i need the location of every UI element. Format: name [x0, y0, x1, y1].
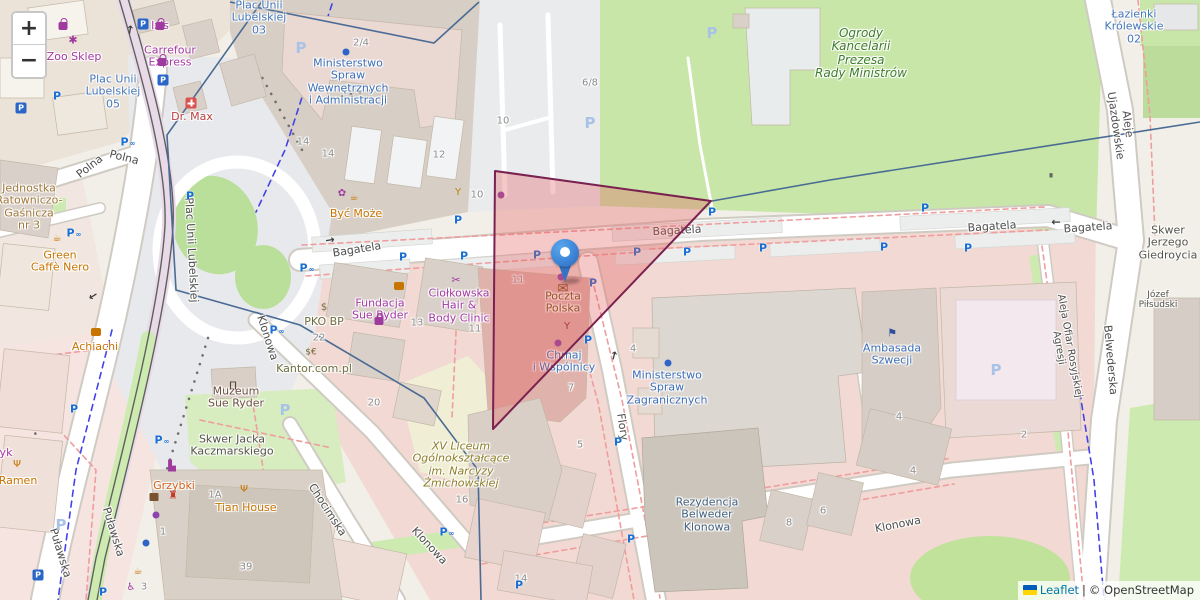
- ukraine-flag-icon: [1023, 585, 1037, 595]
- attribution-bar: Leaflet|© OpenStreetMap: [1018, 581, 1200, 600]
- zoom-in-button[interactable]: +: [13, 13, 45, 45]
- map-canvas[interactable]: PolnaPolnaPlac Unii LubelskiejBagatelaBa…: [0, 0, 1200, 600]
- map-tiles: [0, 0, 1200, 600]
- leaflet-link[interactable]: Leaflet: [1040, 583, 1079, 597]
- osm-copyright[interactable]: © OpenStreetMap: [1089, 583, 1194, 597]
- zoom-control: + −: [11, 11, 47, 79]
- attribution-separator: |: [1082, 583, 1086, 597]
- map-marker[interactable]: [550, 239, 580, 285]
- zoom-out-button[interactable]: −: [13, 45, 45, 77]
- marker-dot-icon: [560, 247, 570, 257]
